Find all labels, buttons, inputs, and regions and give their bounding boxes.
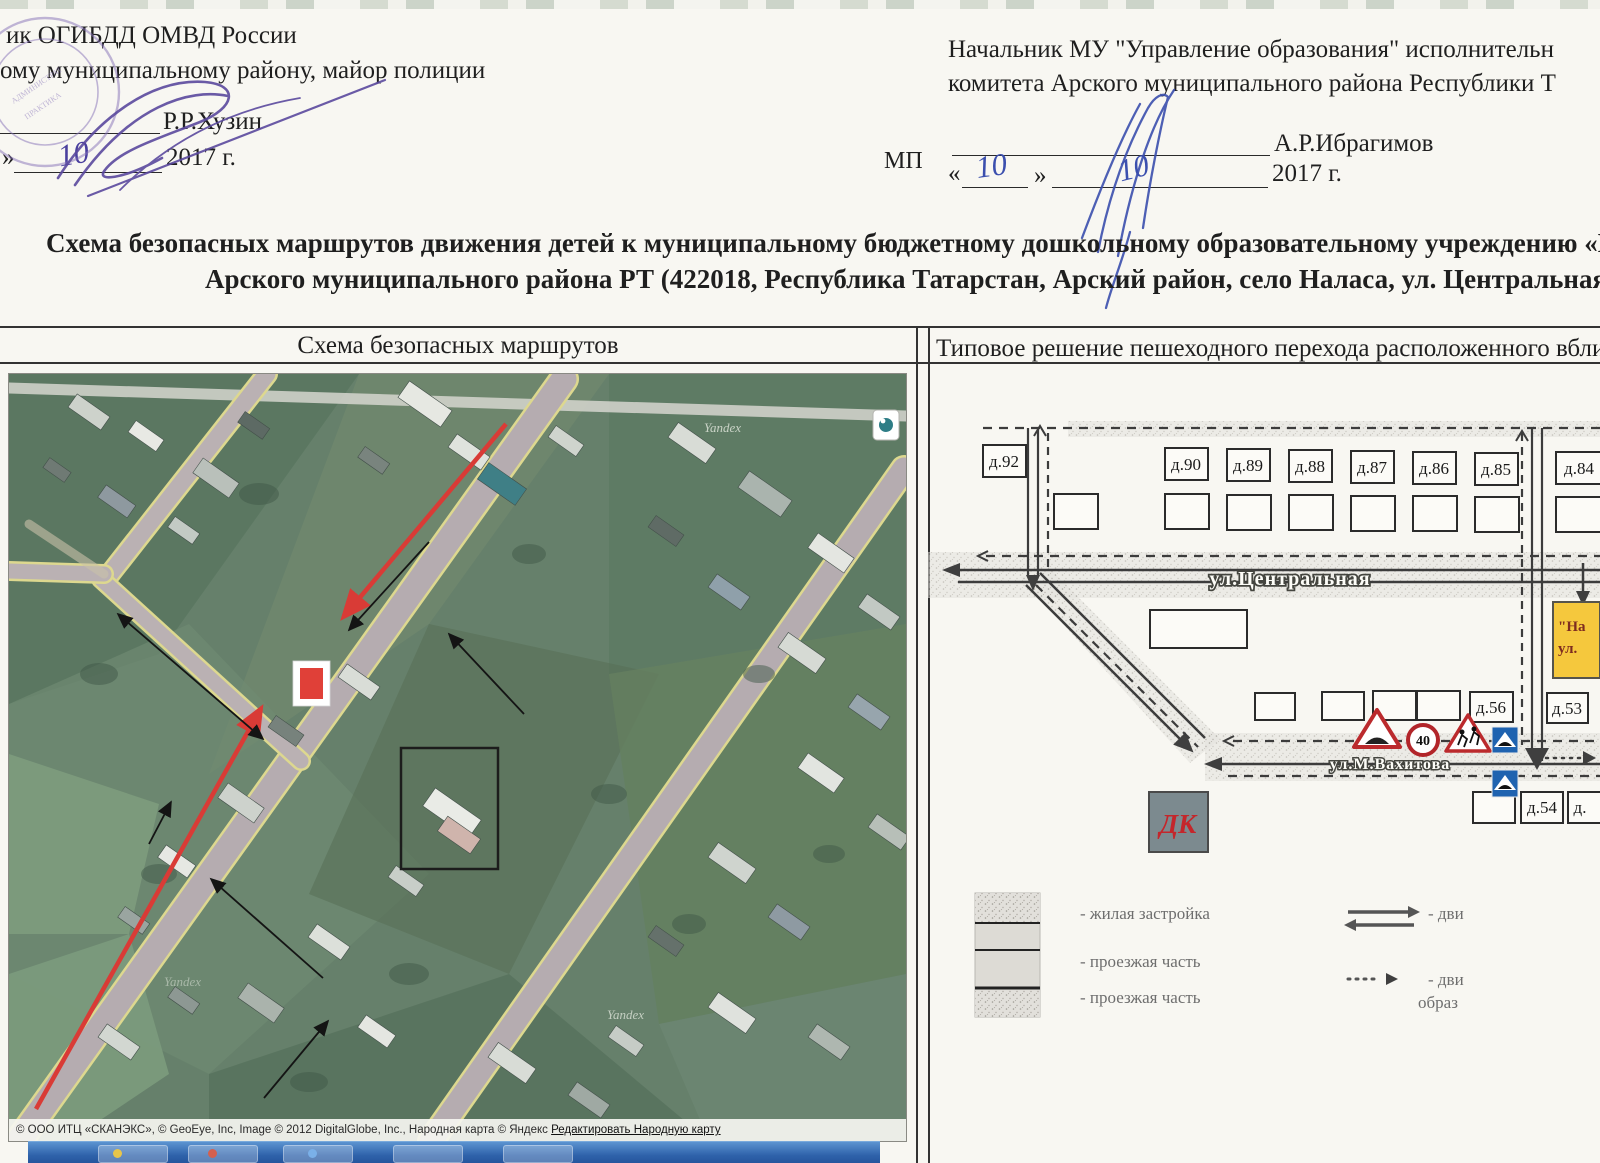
svg-text:д.85: д.85 bbox=[1481, 460, 1511, 479]
handwritten-month-right: 10 bbox=[1114, 147, 1153, 189]
legend-swatch bbox=[975, 893, 1040, 1017]
taskbar-fragment bbox=[28, 1141, 880, 1163]
svg-text:образ: образ bbox=[1418, 993, 1458, 1012]
svg-text:д.92: д.92 bbox=[989, 452, 1019, 471]
satellite-map-graphic: Yandex Yandex Yandex bbox=[9, 374, 906, 1141]
approval-left-name: Р.Р.Хузин bbox=[163, 108, 262, 136]
sign-artificial-bump-blue-2 bbox=[1492, 770, 1518, 797]
right-column-header: Типовое решение пешеходного перехода рас… bbox=[936, 335, 1600, 363]
sign-speed-limit-40: 40 bbox=[1408, 725, 1438, 755]
svg-text:"На: "На bbox=[1558, 619, 1586, 635]
handwritten-day-left: 10 bbox=[55, 134, 92, 175]
approval-right-line1: Начальник МУ "Управление образования" ис… bbox=[948, 36, 1600, 64]
scanned-document-page: ик ОГИБДД ОМВД России ому муниципальному… bbox=[0, 0, 1600, 1163]
svg-text:ул.: ул. bbox=[1558, 641, 1578, 657]
svg-text:Yandex: Yandex bbox=[607, 1007, 644, 1022]
handwritten-day-right: 10 bbox=[974, 146, 1010, 186]
map-edit-link[interactable]: Редактировать Народную карту bbox=[551, 1124, 720, 1136]
signature-left-ink bbox=[58, 80, 385, 196]
approval-right-quote-open: « bbox=[948, 160, 961, 188]
taskbar-icon[interactable] bbox=[308, 1149, 317, 1158]
map-layers-button[interactable] bbox=[873, 410, 899, 440]
svg-text:д.87: д.87 bbox=[1357, 458, 1387, 477]
taskbar-button[interactable] bbox=[503, 1145, 573, 1163]
svg-text:д.88: д.88 bbox=[1295, 457, 1325, 476]
left-column-header: Схема безопасных маршрутов bbox=[0, 332, 916, 360]
svg-text:д.84: д.84 bbox=[1564, 459, 1594, 478]
svg-text:д.: д. bbox=[1574, 798, 1587, 817]
approval-right-year: 2017 г. bbox=[1272, 160, 1342, 188]
svg-text:Yandex: Yandex bbox=[704, 420, 741, 435]
document-title-line1: Схема безопасных маршрутов движения дете… bbox=[46, 228, 1600, 259]
svg-text:- проезжая часть: - проезжая часть bbox=[1080, 952, 1201, 971]
svg-text:д.53: д.53 bbox=[1552, 699, 1582, 718]
table-border-top bbox=[0, 326, 1600, 328]
taskbar-button[interactable] bbox=[283, 1145, 353, 1163]
approval-left-year: 2017 г. bbox=[166, 144, 236, 172]
map-attribution-text: © ООО ИТЦ «СКАНЭКС», © GeoEye, Inc, Imag… bbox=[16, 1124, 551, 1136]
date-month-line-right bbox=[1052, 187, 1268, 188]
taskbar-button[interactable] bbox=[188, 1145, 258, 1163]
dk-building: ДК bbox=[1149, 792, 1208, 852]
sign-artificial-bump-blue-1 bbox=[1492, 727, 1518, 753]
kindergarten-box: "На ул. bbox=[1553, 602, 1600, 678]
taskbar-icon[interactable] bbox=[208, 1149, 217, 1158]
taskbar-icon[interactable] bbox=[113, 1149, 122, 1158]
svg-text:ДК: ДК bbox=[1157, 809, 1198, 839]
svg-text:д.54: д.54 bbox=[1527, 798, 1557, 817]
svg-text:д.90: д.90 bbox=[1171, 455, 1201, 474]
approval-right-line2: комитета Арского муниципального района Р… bbox=[948, 70, 1600, 98]
approval-left-quote: » bbox=[2, 144, 15, 172]
approval-right-quote-close: » bbox=[1034, 162, 1047, 190]
satellite-map-panel: Yandex Yandex Yandex © ООО ИТЦ «СКАНЭКС»… bbox=[8, 373, 907, 1142]
school-marker bbox=[293, 661, 330, 706]
approval-left-line2: ому муниципальному району, майор полиции bbox=[0, 57, 485, 85]
taskbar-button[interactable] bbox=[393, 1145, 463, 1163]
street-label-vahitova: ул.М.Вахитова bbox=[1330, 756, 1450, 773]
svg-text:- дви: - дви bbox=[1428, 904, 1464, 923]
legend-arrows bbox=[1344, 906, 1420, 979]
table-divider-line-1 bbox=[916, 326, 918, 1163]
document-title-line2: Арского муниципального района РТ (422018… bbox=[205, 264, 1600, 295]
svg-text:- дви: - дви bbox=[1428, 970, 1464, 989]
svg-text:Yandex: Yandex bbox=[164, 974, 201, 989]
svg-text:д.89: д.89 bbox=[1233, 456, 1263, 475]
svg-text:40: 40 bbox=[1416, 734, 1430, 749]
street-label-central: ул.Центральная bbox=[1209, 568, 1370, 590]
approval-left-line1: ик ОГИБДД ОМВД России bbox=[6, 22, 297, 50]
approval-right-name: А.Р.Ибрагимов bbox=[1274, 130, 1433, 158]
map-attribution: © ООО ИТЦ «СКАНЭКС», © GeoEye, Inc, Imag… bbox=[9, 1119, 906, 1141]
legend-labels: - жилая застройка - проезжая часть - про… bbox=[1080, 904, 1464, 1012]
svg-text:д.56: д.56 bbox=[1476, 698, 1506, 717]
mp-seal-mark: МП bbox=[884, 148, 923, 175]
date-day-line-right bbox=[962, 187, 1028, 188]
svg-text:ПРАКТИКА: ПРАКТИКА bbox=[23, 90, 63, 121]
crossing-scheme-diagram: ул.Центральная ул.М.Вахитова д.92 д.90 д… bbox=[928, 363, 1600, 1163]
svg-text:- жилая застройка: - жилая застройка bbox=[1080, 904, 1210, 923]
svg-text:- проезжая часть: - проезжая часть bbox=[1080, 988, 1201, 1007]
scan-edge-artifact bbox=[0, 0, 1600, 9]
svg-text:д.86: д.86 bbox=[1419, 459, 1449, 478]
taskbar-button[interactable] bbox=[98, 1145, 168, 1163]
date-line-left bbox=[14, 172, 162, 173]
